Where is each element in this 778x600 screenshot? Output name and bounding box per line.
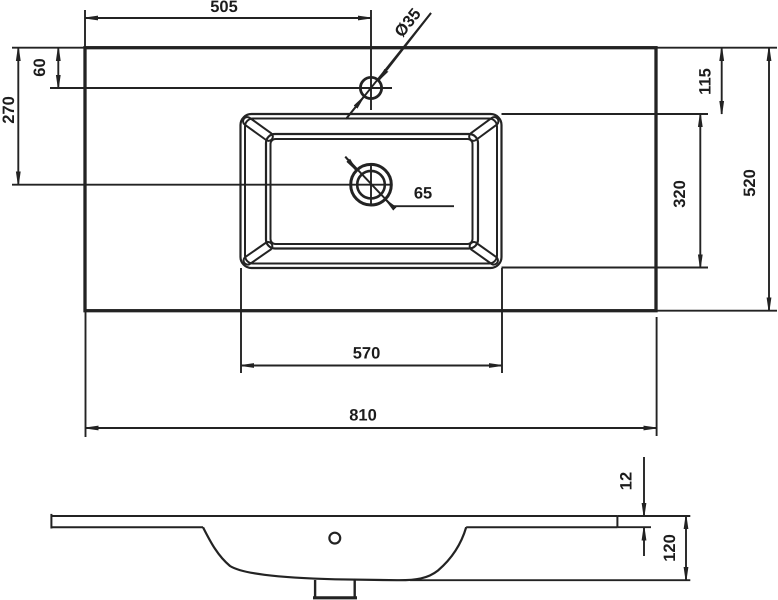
svg-text:60: 60 <box>31 58 49 76</box>
svg-text:12: 12 <box>618 472 636 490</box>
svg-text:810: 810 <box>349 407 377 425</box>
svg-text:320: 320 <box>671 180 689 208</box>
svg-text:505: 505 <box>210 0 238 16</box>
svg-text:570: 570 <box>353 345 381 363</box>
svg-text:65: 65 <box>414 185 432 203</box>
svg-text:115: 115 <box>697 68 715 95</box>
svg-text:520: 520 <box>741 169 759 197</box>
svg-text:Ø35: Ø35 <box>391 5 425 41</box>
svg-text:270: 270 <box>0 96 18 124</box>
svg-text:120: 120 <box>661 534 679 562</box>
